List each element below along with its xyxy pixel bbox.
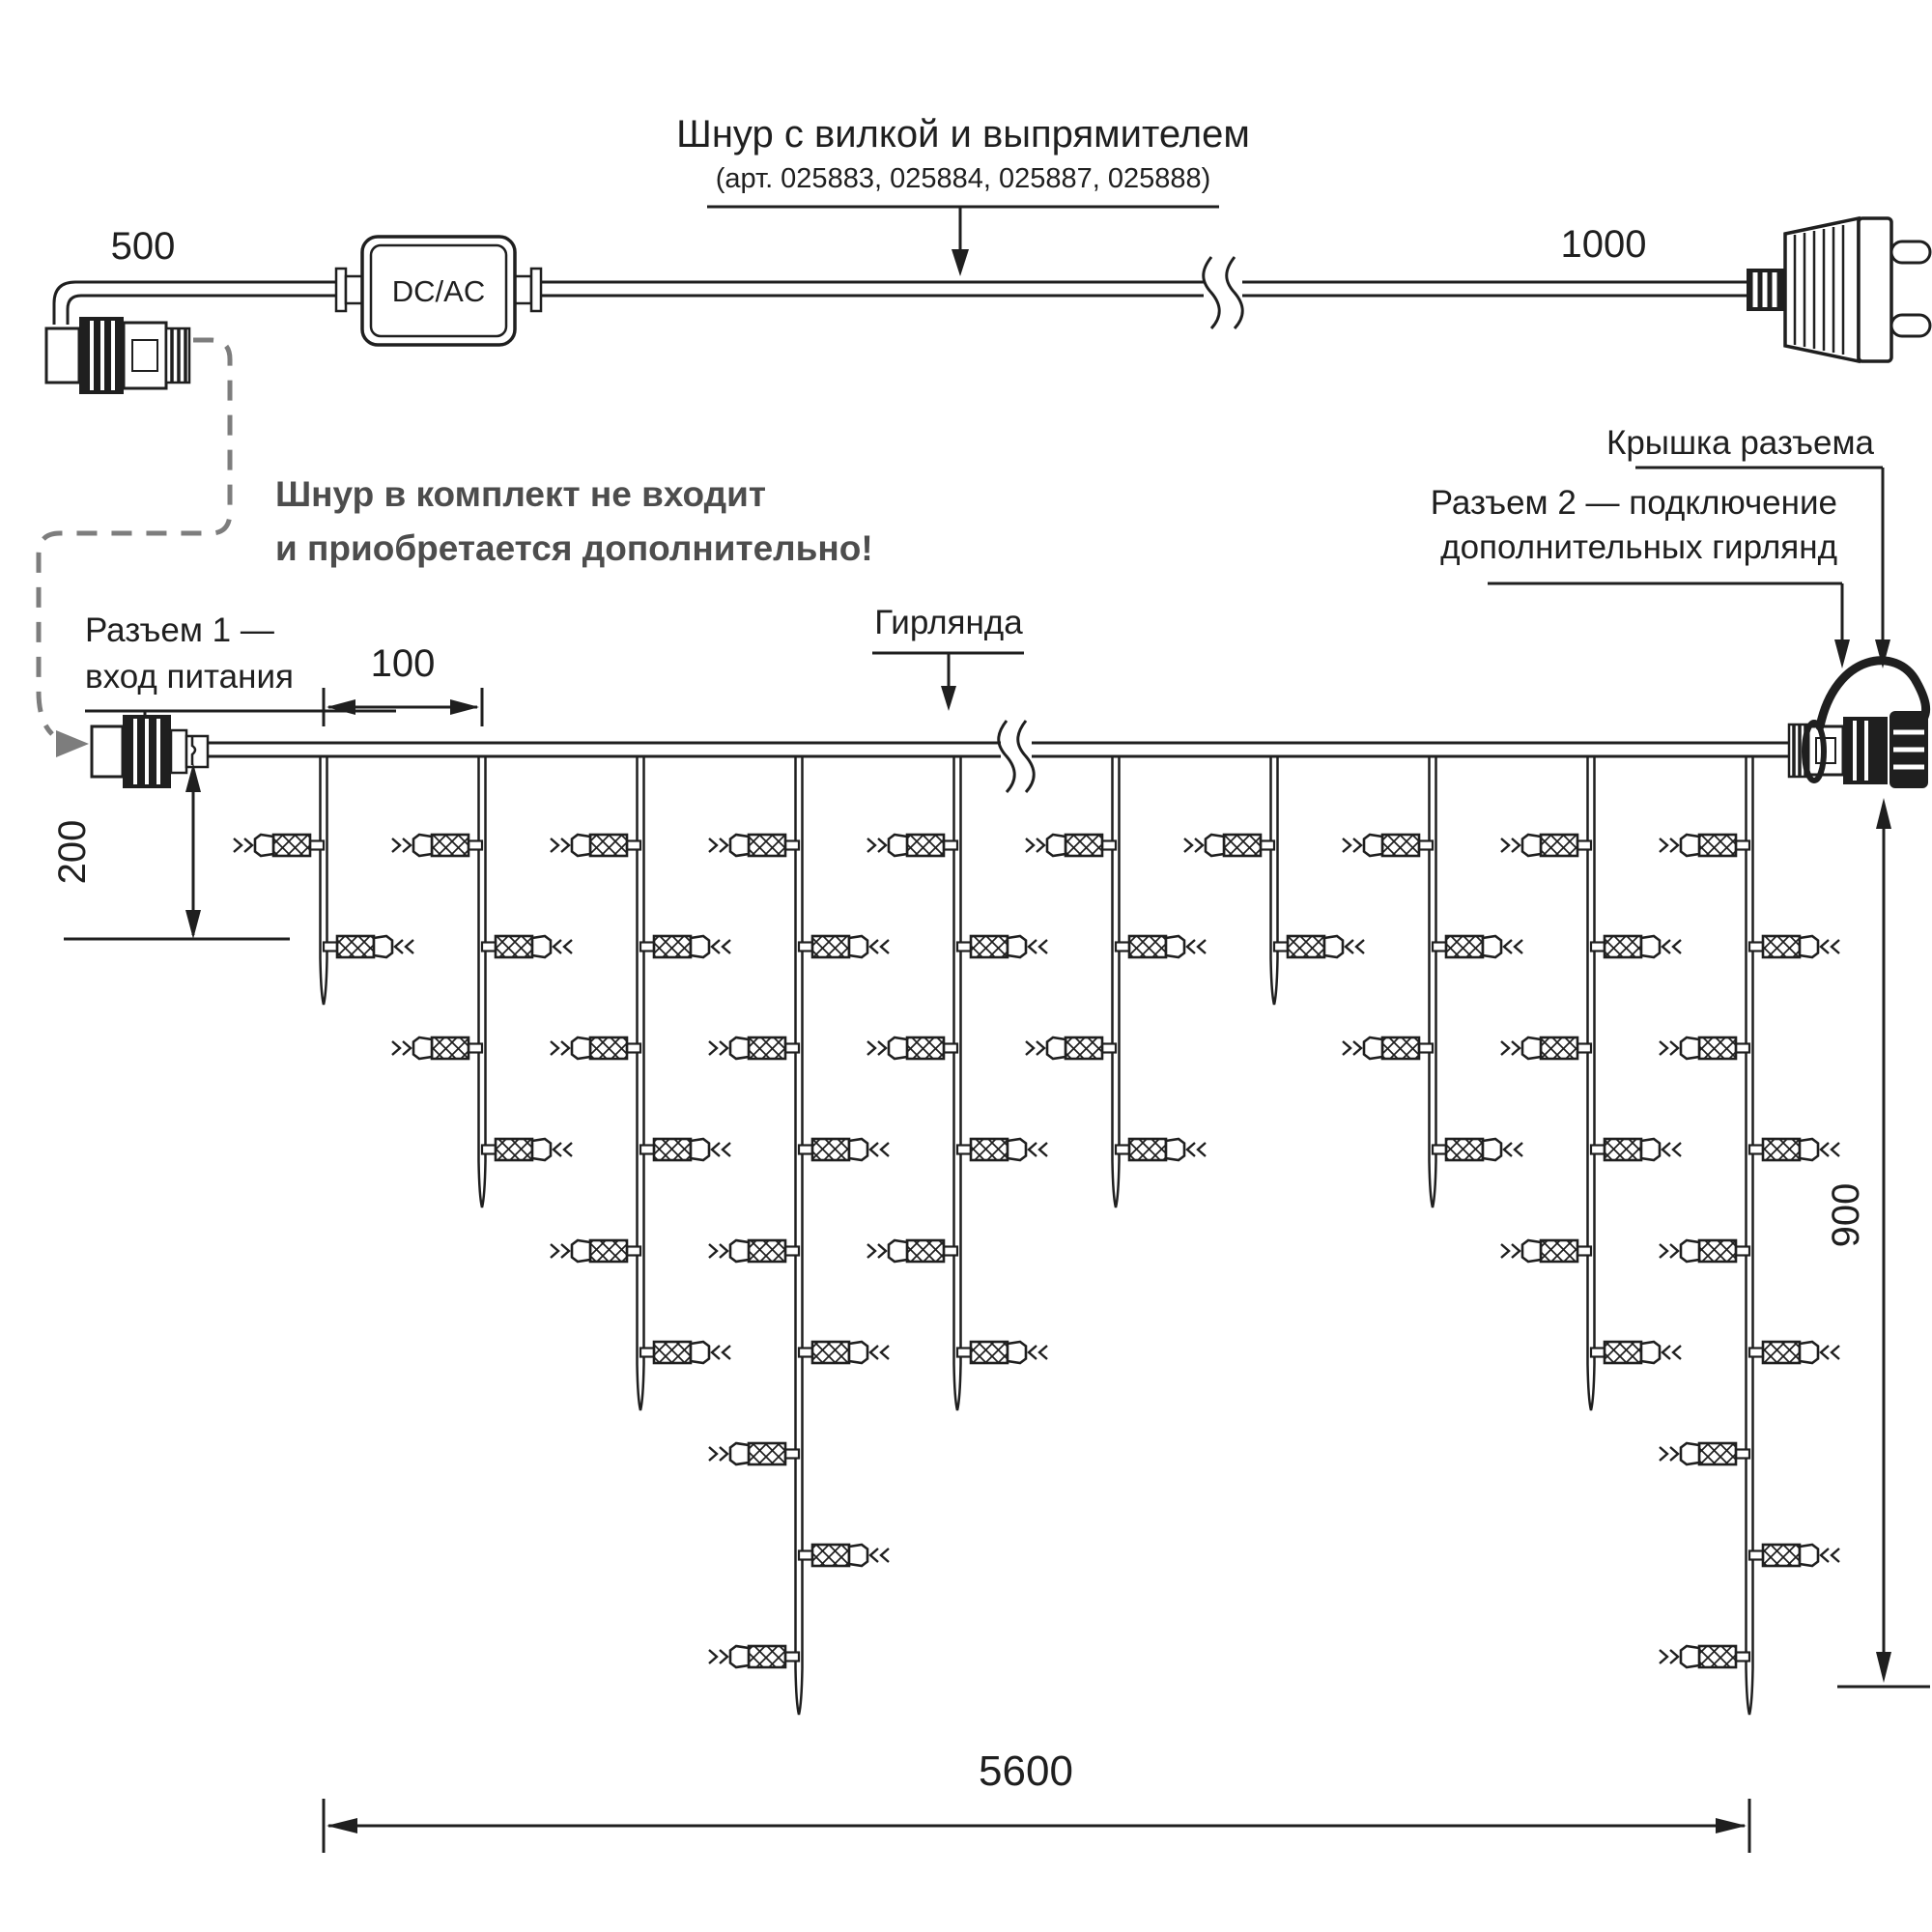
bulb-stem xyxy=(310,841,324,850)
led-bulb-tip xyxy=(1681,1443,1699,1464)
bulb-stem xyxy=(1736,1653,1749,1662)
led-bulb-tip xyxy=(730,835,749,856)
led-bulb-tip xyxy=(413,1037,432,1059)
light-ray-icon xyxy=(1026,838,1044,852)
bulb-stem xyxy=(1102,841,1116,850)
led-bulb-tip xyxy=(1522,835,1541,856)
led-bulb-barrel xyxy=(590,835,627,856)
led-bulb-tip xyxy=(1522,1037,1541,1059)
icicle-tip xyxy=(1747,1668,1753,1715)
light-ray-icon xyxy=(870,1346,889,1359)
led-bulb-tip xyxy=(889,1240,907,1262)
light-ray-icon xyxy=(1029,940,1047,953)
led-bulb-barrel xyxy=(971,1342,1008,1363)
led-bulb-tip xyxy=(730,1240,749,1262)
bulb-stem xyxy=(1577,1247,1591,1256)
led-bulb-tip xyxy=(1483,936,1501,957)
connector1-text-line2: вход питания xyxy=(85,658,294,696)
dim-200-label: 200 xyxy=(51,820,94,885)
light-ray-icon xyxy=(867,838,886,852)
led-bulb-tip xyxy=(849,936,867,957)
icicle-tip xyxy=(1588,1364,1595,1410)
light-ray-icon xyxy=(870,1548,889,1562)
led-bulb-tip xyxy=(1364,1037,1382,1059)
light-ray-icon xyxy=(1026,1041,1044,1055)
light-ray-icon xyxy=(1343,1041,1361,1055)
connector1-text-line1: Разъем 1 — xyxy=(85,611,274,649)
led-bulb-tip xyxy=(691,936,709,957)
bus-break-icon xyxy=(999,721,1015,792)
led-bulb-tip xyxy=(374,936,392,957)
led-bulb-barrel xyxy=(907,1240,944,1262)
light-ray-icon xyxy=(1187,940,1206,953)
led-bulb-barrel xyxy=(496,1139,532,1160)
dim-arrow-icon xyxy=(327,1818,357,1833)
garland-arrow-icon xyxy=(941,686,956,711)
led-bulb-barrel xyxy=(1129,936,1166,957)
bulb-stem xyxy=(799,1349,812,1357)
connector2-text-line1: Разъем 2 — подключение xyxy=(1431,484,1837,522)
light-ray-icon xyxy=(395,940,413,953)
garland-label: Гирлянда xyxy=(872,604,1024,711)
light-ray-icon xyxy=(234,838,252,852)
led-bulb-tip xyxy=(532,936,551,957)
led-bulb-tip xyxy=(1008,936,1026,957)
light-ray-icon xyxy=(1346,940,1364,953)
led-bulb-barrel xyxy=(1288,936,1324,957)
bulb-stem xyxy=(482,1146,496,1154)
led-bulb-tip xyxy=(1641,1139,1660,1160)
light-ray-icon xyxy=(1029,1143,1047,1156)
icicle-tip xyxy=(1113,1161,1120,1207)
bulb-stem xyxy=(799,1551,812,1560)
light-ray-icon xyxy=(1662,940,1681,953)
garland-text: Гирлянда xyxy=(874,604,1023,641)
light-ray-icon xyxy=(1821,1548,1839,1562)
dim-arrow-icon xyxy=(1876,798,1891,829)
light-ray-icon xyxy=(1660,838,1678,852)
bulb-stem xyxy=(324,943,337,952)
stub-right-inner xyxy=(515,276,531,303)
bulb-stem xyxy=(1116,1146,1129,1154)
connector-collar xyxy=(46,328,79,383)
led-bulb-barrel xyxy=(1605,936,1641,957)
led-bulb-barrel xyxy=(1541,1037,1577,1059)
bulb-stem xyxy=(944,841,957,850)
led-bulb-tip xyxy=(1641,1342,1660,1363)
led-bulb-barrel xyxy=(907,835,944,856)
light-ray-icon xyxy=(712,1143,730,1156)
light-ray-icon xyxy=(1821,1346,1839,1359)
led-bulb-tip xyxy=(1681,835,1699,856)
light-ray-icon xyxy=(551,1244,569,1258)
led-bulb-barrel xyxy=(812,936,849,957)
light-ray-icon xyxy=(1501,838,1520,852)
led-bulb-barrel xyxy=(812,1139,849,1160)
led-bulb-barrel xyxy=(971,936,1008,957)
led-bulb-tip xyxy=(1800,1545,1818,1566)
led-bulb-tip xyxy=(1800,1139,1818,1160)
dim-100: 100 xyxy=(324,642,482,726)
led-bulb-barrel xyxy=(907,1037,944,1059)
led-bulb-barrel xyxy=(1763,1545,1800,1566)
light-ray-icon xyxy=(1504,1143,1522,1156)
title-block: Шнур с вилкой и выпрямителем (арт. 02588… xyxy=(676,113,1250,276)
note-line2: и приобретается дополнительно! xyxy=(275,528,873,568)
led-bulb-tip xyxy=(1800,1342,1818,1363)
led-bulb-barrel xyxy=(337,936,374,957)
connector-collar xyxy=(171,730,186,773)
bulb-stem xyxy=(785,1044,799,1053)
bulb-stem xyxy=(957,943,971,952)
light-ray-icon xyxy=(870,1143,889,1156)
light-ray-icon xyxy=(712,1346,730,1359)
light-ray-icon xyxy=(712,940,730,953)
led-bulb-tip xyxy=(1522,1240,1541,1262)
led-bulb-barrel xyxy=(1446,1139,1483,1160)
led-bulb-tip xyxy=(849,1139,867,1160)
light-ray-icon xyxy=(1184,838,1203,852)
led-bulb-barrel xyxy=(1699,1443,1736,1464)
led-bulb-tip xyxy=(1008,1342,1026,1363)
led-bulb-barrel xyxy=(1605,1342,1641,1363)
bulb-stem xyxy=(469,1044,482,1053)
light-ray-icon xyxy=(709,1447,727,1461)
cap-text: Крышка разъема xyxy=(1606,424,1875,462)
led-bulb-barrel xyxy=(749,1037,785,1059)
led-bulb-barrel xyxy=(1699,1240,1736,1262)
led-bulb-tip xyxy=(1681,1646,1699,1667)
light-ray-icon xyxy=(1662,1346,1681,1359)
icicle-tip xyxy=(638,1364,644,1410)
connector2-text-line2: дополнительных гирлянд xyxy=(1440,528,1837,566)
led-bulb-tip xyxy=(572,835,590,856)
led-bulb-tip xyxy=(730,1443,749,1464)
led-bulb-tip xyxy=(849,1545,867,1566)
bulb-stem xyxy=(957,1146,971,1154)
light-ray-icon xyxy=(1501,1041,1520,1055)
dim-arrow-icon xyxy=(185,910,201,939)
dim-900-label: 900 xyxy=(1825,1183,1867,1248)
light-ray-icon xyxy=(1660,1447,1678,1461)
led-bulb-tip xyxy=(849,1342,867,1363)
led-bulb-barrel xyxy=(432,1037,469,1059)
bulb-stem xyxy=(1591,1146,1605,1154)
light-ray-icon xyxy=(554,940,572,953)
led-bulb-tip xyxy=(1681,1037,1699,1059)
led-bulb-barrel xyxy=(496,936,532,957)
led-bulb-tip xyxy=(1047,835,1065,856)
bulb-stem xyxy=(482,943,496,952)
led-bulb-tip xyxy=(532,1139,551,1160)
light-ray-icon xyxy=(867,1244,886,1258)
plug-cap xyxy=(1859,218,1891,361)
dcac-label: DC/AC xyxy=(392,274,485,308)
bulb-stem xyxy=(1433,1146,1446,1154)
led-bulb-tip xyxy=(255,835,273,856)
dim-arrow-icon xyxy=(327,699,355,715)
led-bulb-barrel xyxy=(1382,835,1419,856)
bulb-stem xyxy=(1736,1450,1749,1459)
light-ray-icon xyxy=(1821,940,1839,953)
led-bulb-tip xyxy=(1324,936,1343,957)
bulb-stem xyxy=(944,1247,957,1256)
title-articles-text: (арт. 025883, 025884, 025887, 025888) xyxy=(716,163,1211,194)
led-bulb-barrel xyxy=(590,1240,627,1262)
led-bulb-barrel xyxy=(1541,1240,1577,1262)
icicle-tip xyxy=(321,958,327,1005)
dim-900: 900 xyxy=(1825,798,1930,1687)
led-bulb-barrel xyxy=(749,1240,785,1262)
light-ray-icon xyxy=(1187,1143,1206,1156)
led-bulb-barrel xyxy=(1763,936,1800,957)
dim-5600-label: 5600 xyxy=(979,1747,1073,1795)
bulb-stem xyxy=(1736,841,1749,850)
led-bulb-barrel xyxy=(1382,1037,1419,1059)
bulb-stem xyxy=(785,1247,799,1256)
light-ray-icon xyxy=(709,1650,727,1663)
light-ray-icon xyxy=(1660,1244,1678,1258)
bulb-stem xyxy=(1577,841,1591,850)
bulb-stem xyxy=(640,1349,654,1357)
led-bulb-tip xyxy=(1681,1240,1699,1262)
led-bulb-barrel xyxy=(1699,1037,1736,1059)
led-bulb-barrel xyxy=(590,1037,627,1059)
led-bulb-barrel xyxy=(654,936,691,957)
dim-arrow-icon xyxy=(1716,1818,1747,1833)
led-bulb-barrel xyxy=(1699,1646,1736,1667)
stub-left-inner xyxy=(346,276,362,303)
led-bulb-barrel xyxy=(1446,936,1483,957)
bulb-stem xyxy=(1736,1247,1749,1256)
led-bulb-barrel xyxy=(1541,835,1577,856)
led-bulb-barrel xyxy=(654,1139,691,1160)
light-ray-icon xyxy=(1501,1244,1520,1258)
power-cord: 500 1000 xyxy=(54,223,1747,328)
bulb-stem xyxy=(640,1146,654,1154)
connector2-label: Разъем 2 — подключение дополнительных ги… xyxy=(1431,484,1850,668)
led-bulb-barrel xyxy=(1699,835,1736,856)
bulb-stem xyxy=(785,1450,799,1459)
title-text: Шнур с вилкой и выпрямителем xyxy=(676,113,1250,156)
icicle-tip xyxy=(1271,958,1278,1005)
icicle-tip xyxy=(954,1364,961,1410)
bulb-stem xyxy=(799,1146,812,1154)
bulb-stem xyxy=(1433,943,1446,952)
led-bulb-tip xyxy=(1800,936,1818,957)
bulb-stem xyxy=(1116,943,1129,952)
light-ray-icon xyxy=(554,1143,572,1156)
light-ray-icon xyxy=(709,1041,727,1055)
garland-output-connector xyxy=(1789,661,1928,788)
led-bulb-tip xyxy=(691,1342,709,1363)
bulb-stem xyxy=(1749,1146,1763,1154)
bus-break-icon xyxy=(1018,721,1035,792)
bulb-stem xyxy=(957,1349,971,1357)
connector-tail xyxy=(186,736,208,767)
led-bulb-barrel xyxy=(1129,1139,1166,1160)
led-bulb-tip xyxy=(1641,936,1660,957)
power-cord-connector xyxy=(46,317,189,394)
led-bulb-barrel xyxy=(1763,1139,1800,1160)
light-ray-icon xyxy=(709,838,727,852)
icicle-tip xyxy=(796,1668,803,1715)
bulb-stem xyxy=(640,943,654,952)
bulb-stem xyxy=(1749,943,1763,952)
led-bulb-tip xyxy=(572,1037,590,1059)
plug-prong-top xyxy=(1891,241,1930,263)
light-ray-icon xyxy=(551,1041,569,1055)
led-bulb-tip xyxy=(413,835,432,856)
light-ray-icon xyxy=(551,838,569,852)
light-ray-icon xyxy=(1660,1650,1678,1663)
bulb-stem xyxy=(1591,943,1605,952)
icicle-tip xyxy=(479,1161,486,1207)
garland-curtain xyxy=(208,721,1839,1715)
dim-arrow-icon xyxy=(450,699,479,715)
cord-break-icon xyxy=(1227,257,1243,328)
led-bulb-barrel xyxy=(654,1342,691,1363)
bulb-stem xyxy=(1577,1044,1591,1053)
stub-right-outer xyxy=(531,269,541,311)
led-bulb-tip xyxy=(1364,835,1382,856)
led-bulb-tip xyxy=(1008,1139,1026,1160)
light-ray-icon xyxy=(1343,838,1361,852)
bulb-stem xyxy=(785,841,799,850)
led-bulb-barrel xyxy=(971,1139,1008,1160)
light-ray-icon xyxy=(1662,1143,1681,1156)
bulb-stem xyxy=(1591,1349,1605,1357)
dashed-arrow-icon xyxy=(56,730,89,757)
dcac-converter: DC/AC xyxy=(336,237,541,345)
led-bulb-barrel xyxy=(1605,1139,1641,1160)
connector2-arrow-icon xyxy=(1834,639,1850,668)
bulb-stem xyxy=(1736,1044,1749,1053)
dim-100-label: 100 xyxy=(371,642,436,685)
led-bulb-barrel xyxy=(812,1545,849,1566)
bulb-stem xyxy=(1419,1044,1433,1053)
bulb-stem xyxy=(1419,841,1433,850)
led-bulb-barrel xyxy=(749,1646,785,1667)
light-ray-icon xyxy=(1504,940,1522,953)
plug-body xyxy=(1785,218,1859,361)
bulb-stem xyxy=(1749,1551,1763,1560)
connector-nose xyxy=(92,726,123,777)
led-bulb-barrel xyxy=(812,1342,849,1363)
led-bulb-barrel xyxy=(432,835,469,856)
led-bulb-tip xyxy=(691,1139,709,1160)
led-bulb-barrel xyxy=(749,1443,785,1464)
garland-wiring-diagram: Шнур с вилкой и выпрямителем (арт. 02588… xyxy=(0,0,1932,1932)
bulb-stem xyxy=(1261,841,1274,850)
led-bulb-tip xyxy=(889,1037,907,1059)
bulb-stem xyxy=(627,1247,640,1256)
light-ray-icon xyxy=(709,1244,727,1258)
dim-1000-label: 1000 xyxy=(1561,223,1647,266)
dim-arrow-icon xyxy=(1876,1652,1891,1683)
led-bulb-tip xyxy=(1166,936,1184,957)
dim-500-label: 500 xyxy=(111,225,176,268)
light-ray-icon xyxy=(1029,1346,1047,1359)
led-bulb-tip xyxy=(730,1037,749,1059)
bulb-stem xyxy=(785,1653,799,1662)
diagram-canvas: Шнур с вилкой и выпрямителем (арт. 02588… xyxy=(0,0,1932,1932)
led-bulb-tip xyxy=(1047,1037,1065,1059)
led-bulb-tip xyxy=(572,1240,590,1262)
led-bulb-tip xyxy=(1166,1139,1184,1160)
led-bulb-tip xyxy=(730,1646,749,1667)
led-bulb-barrel xyxy=(273,835,310,856)
note-line1: Шнур в комплект не входит xyxy=(275,474,766,514)
led-bulb-barrel xyxy=(1065,1037,1102,1059)
bulb-stem xyxy=(627,1044,640,1053)
bulb-stem xyxy=(1102,1044,1116,1053)
stub-left-outer xyxy=(336,269,346,311)
led-bulb-barrel xyxy=(1763,1342,1800,1363)
connector-body-detail xyxy=(132,340,157,371)
light-ray-icon xyxy=(1821,1143,1839,1156)
bulb-stem xyxy=(1274,943,1288,952)
bulb-stem xyxy=(1749,1349,1763,1357)
led-bulb-tip xyxy=(1206,835,1224,856)
icicle-tip xyxy=(1430,1161,1436,1207)
plug-prong-bottom xyxy=(1891,315,1930,336)
led-bulb-tip xyxy=(1483,1139,1501,1160)
light-ray-icon xyxy=(392,1041,411,1055)
led-bulb-barrel xyxy=(1065,835,1102,856)
led-bulb-barrel xyxy=(749,835,785,856)
light-ray-icon xyxy=(1660,1041,1678,1055)
light-ray-icon xyxy=(867,1041,886,1055)
bulb-stem xyxy=(469,841,482,850)
title-arrow-icon xyxy=(952,249,969,276)
bulb-stem xyxy=(944,1044,957,1053)
bulb-stem xyxy=(799,943,812,952)
led-bulb-barrel xyxy=(1224,835,1261,856)
light-ray-icon xyxy=(392,838,411,852)
light-ray-icon xyxy=(870,940,889,953)
cord-break-icon xyxy=(1204,257,1220,328)
led-bulb-tip xyxy=(889,835,907,856)
dim-5600: 5600 xyxy=(324,1747,1749,1853)
bulb-stem xyxy=(627,841,640,850)
mains-plug xyxy=(1747,218,1930,361)
